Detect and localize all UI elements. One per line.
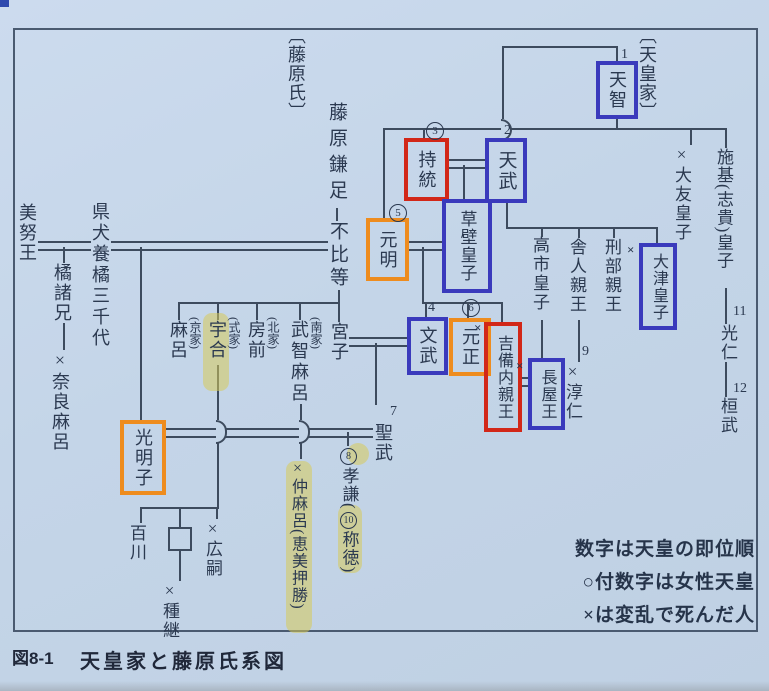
person-monmu: 文武 bbox=[419, 326, 437, 366]
number-monmu: 4 bbox=[428, 300, 435, 316]
connector-line bbox=[256, 302, 258, 320]
person-toneri: 舎人親王 bbox=[568, 238, 585, 314]
connector-line bbox=[423, 128, 425, 138]
person-nagaya: 長屋王 bbox=[539, 369, 555, 420]
koken-name: 孝謙 bbox=[340, 467, 359, 503]
connector-line bbox=[502, 46, 504, 119]
caption-figure-number: 図8-1 bbox=[12, 644, 54, 669]
connector-line bbox=[179, 551, 181, 581]
person-komyoshi-box: 光明子 bbox=[120, 420, 166, 495]
connector-line bbox=[613, 227, 615, 238]
cross-nagaya: × bbox=[516, 358, 523, 374]
person-otsu: 大津皇子 bbox=[650, 253, 666, 321]
number-konin: 11 bbox=[733, 304, 746, 320]
connector-line bbox=[506, 227, 658, 229]
person-maro: 麻呂 bbox=[169, 320, 187, 360]
connector-line bbox=[578, 320, 580, 362]
connector-line bbox=[63, 247, 65, 263]
person-monmu-box: 文武 bbox=[407, 317, 448, 375]
connector-line bbox=[338, 290, 340, 302]
person-konin: 光仁 bbox=[719, 324, 736, 362]
person-tenmu: 天武 bbox=[497, 150, 516, 192]
person-momokawa: 百川 bbox=[128, 524, 145, 562]
number-tenmu: 2 bbox=[504, 123, 511, 139]
person-jito-box: 持統 bbox=[404, 138, 449, 201]
person-osakabe: 刑部親王 bbox=[603, 238, 620, 314]
connector-line bbox=[501, 302, 503, 322]
unnamed-son-square bbox=[168, 527, 192, 551]
connector-line bbox=[63, 323, 65, 350]
person-tenji: 天智 bbox=[608, 70, 626, 110]
person-kibi: 吉備内親王 bbox=[495, 335, 511, 420]
connector-line bbox=[347, 432, 349, 446]
label-fujiwara-clan: 〔藤原氏〕 bbox=[287, 26, 305, 121]
connector-line bbox=[725, 128, 727, 148]
person-kibi-box: 吉備内親王 bbox=[484, 322, 522, 432]
page-corner-mark bbox=[0, 0, 9, 7]
person-otsu-box: 大津皇子 bbox=[639, 243, 677, 330]
person-nagaya-box: 長屋王 bbox=[528, 358, 565, 430]
person-genmei: 元明 bbox=[379, 230, 397, 270]
person-kanmu: 桓武 bbox=[719, 397, 736, 435]
koken-paren-close: ) bbox=[340, 567, 359, 574]
person-shiki: 施基(志貴)皇子 bbox=[715, 148, 732, 269]
connector-line bbox=[578, 227, 580, 238]
connector-line bbox=[422, 247, 424, 302]
person-kamatari: 藤原鎌足 bbox=[327, 102, 346, 206]
person-tenji-box: 天智 bbox=[596, 61, 638, 119]
page-edge-shadow bbox=[0, 681, 769, 691]
connector-line bbox=[338, 302, 340, 322]
person-komyoshi: 光明子 bbox=[134, 428, 152, 488]
person-genmei-box: 元明 bbox=[366, 218, 409, 281]
connector-line bbox=[179, 507, 181, 527]
person-kusakabe: 草壁皇子 bbox=[459, 210, 476, 282]
number-shomu: 7 bbox=[390, 404, 397, 420]
person-fusasaki-house: (北家) bbox=[267, 317, 279, 349]
shotoku-name: 称徳 bbox=[340, 531, 359, 567]
person-tanetsugu: ×種継 bbox=[161, 581, 178, 640]
shotoku-number: 10 bbox=[340, 512, 357, 529]
person-muchimaro-house: (南家) bbox=[310, 317, 322, 349]
connector-line bbox=[336, 208, 338, 221]
legend-line-1: 数字は天皇の即位順 bbox=[575, 534, 755, 561]
connector-line bbox=[299, 302, 301, 320]
book-page: 〔藤原氏〕 〔天皇家〕 天智 天武 持統 草壁皇子 元明 文武 元正 吉備内親王… bbox=[0, 0, 769, 691]
person-minoo: 美努王 bbox=[18, 203, 36, 263]
number-jito-circled: 3 bbox=[426, 122, 444, 140]
legend-line-3: ×は変乱で死んだ人 bbox=[583, 600, 755, 627]
number-junnin: 9 bbox=[582, 344, 589, 360]
koken-number: 8 bbox=[340, 448, 357, 465]
connector-line bbox=[140, 507, 142, 523]
person-koken: 8孝謙(10称徳) bbox=[340, 446, 358, 573]
person-umakai-house: (式家) bbox=[228, 317, 240, 349]
person-fuhito: 不比等 bbox=[328, 221, 347, 290]
person-hirotsugu: ×広嗣 bbox=[204, 519, 221, 578]
connector-line bbox=[383, 128, 385, 218]
caption-title: 天皇家と藤原氏系図 bbox=[80, 645, 287, 674]
connector-line bbox=[217, 440, 219, 507]
person-miyako: 宮子 bbox=[330, 322, 348, 362]
number-genmei-circled: 5 bbox=[389, 204, 407, 222]
connector-line bbox=[463, 165, 465, 199]
person-moroe: 橘諸兄 bbox=[53, 263, 71, 323]
number-kanmu: 12 bbox=[733, 381, 747, 397]
person-fusasaki: 房前 bbox=[247, 320, 265, 360]
person-otomo: ×大友皇子 bbox=[673, 145, 690, 242]
person-muchimaro: 武智麻呂 bbox=[290, 320, 308, 404]
number-gensho-circled: 6 bbox=[462, 299, 480, 317]
person-tenmu-box: 天武 bbox=[485, 138, 527, 203]
marriage-line bbox=[409, 241, 442, 251]
marriage-line bbox=[166, 428, 373, 438]
number-tenji: 1 bbox=[621, 47, 628, 63]
connector-line bbox=[690, 128, 692, 145]
person-junnin: ×淳仁 bbox=[564, 362, 581, 421]
connector-line bbox=[725, 362, 727, 397]
connector-line bbox=[216, 507, 218, 519]
legend-line-2: ○付数字は女性天皇 bbox=[583, 567, 755, 594]
marriage-line bbox=[111, 241, 328, 251]
person-shomu: 聖武 bbox=[374, 423, 392, 463]
connector-line bbox=[616, 119, 618, 128]
cross-kibi: × bbox=[474, 320, 481, 336]
koken-paren-open: ( bbox=[340, 503, 359, 510]
person-jito: 持統 bbox=[418, 150, 436, 190]
person-maro-house: (京家) bbox=[189, 317, 201, 349]
connector-line bbox=[506, 203, 508, 228]
person-michiyo: 県犬養橘三千代 bbox=[91, 202, 109, 349]
person-kusakabe-box: 草壁皇子 bbox=[442, 199, 492, 293]
connector-line bbox=[541, 320, 543, 358]
connector-line bbox=[300, 404, 302, 420]
person-nakamaro: ×仲麻呂(恵美押勝) bbox=[289, 460, 305, 610]
connector-line bbox=[178, 302, 180, 320]
marriage-line bbox=[349, 337, 407, 347]
connector-line bbox=[656, 227, 658, 243]
connector-line bbox=[725, 288, 727, 324]
person-umakai: 宇合 bbox=[208, 320, 226, 360]
person-naramaro: ×奈良麻呂 bbox=[51, 350, 69, 452]
connector-line bbox=[178, 302, 340, 304]
person-takechi: 高市皇子 bbox=[531, 236, 548, 312]
connector-line bbox=[425, 302, 427, 317]
cross-otsu: × bbox=[627, 242, 634, 258]
marriage-line bbox=[449, 159, 485, 169]
connector-line bbox=[375, 343, 377, 405]
connector-line bbox=[140, 247, 142, 420]
label-imperial-house: 〔天皇家〕 bbox=[638, 26, 656, 121]
connector-line bbox=[502, 46, 617, 48]
connector-line bbox=[616, 46, 618, 61]
